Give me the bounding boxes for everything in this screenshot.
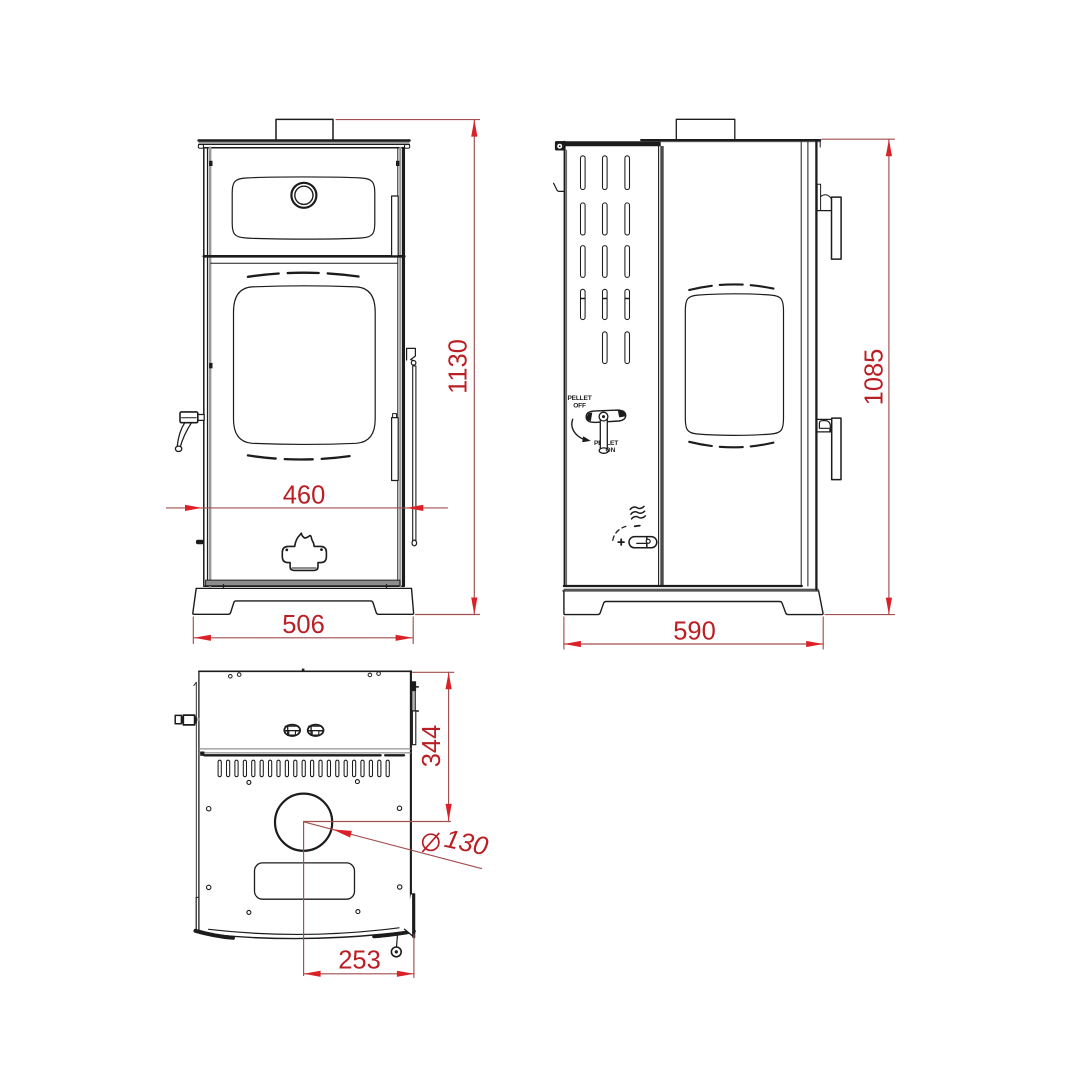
svg-text:OFF: OFF	[573, 403, 586, 410]
svg-text:1085: 1085	[860, 349, 888, 406]
svg-text:PELLET: PELLET	[567, 395, 591, 402]
svg-text:460: 460	[283, 482, 326, 510]
svg-text:344: 344	[418, 725, 446, 768]
svg-text:ON: ON	[606, 447, 616, 454]
svg-text:590: 590	[673, 618, 716, 646]
svg-text:1130: 1130	[445, 339, 473, 394]
svg-text:506: 506	[282, 611, 325, 639]
svg-text:253: 253	[338, 947, 381, 975]
